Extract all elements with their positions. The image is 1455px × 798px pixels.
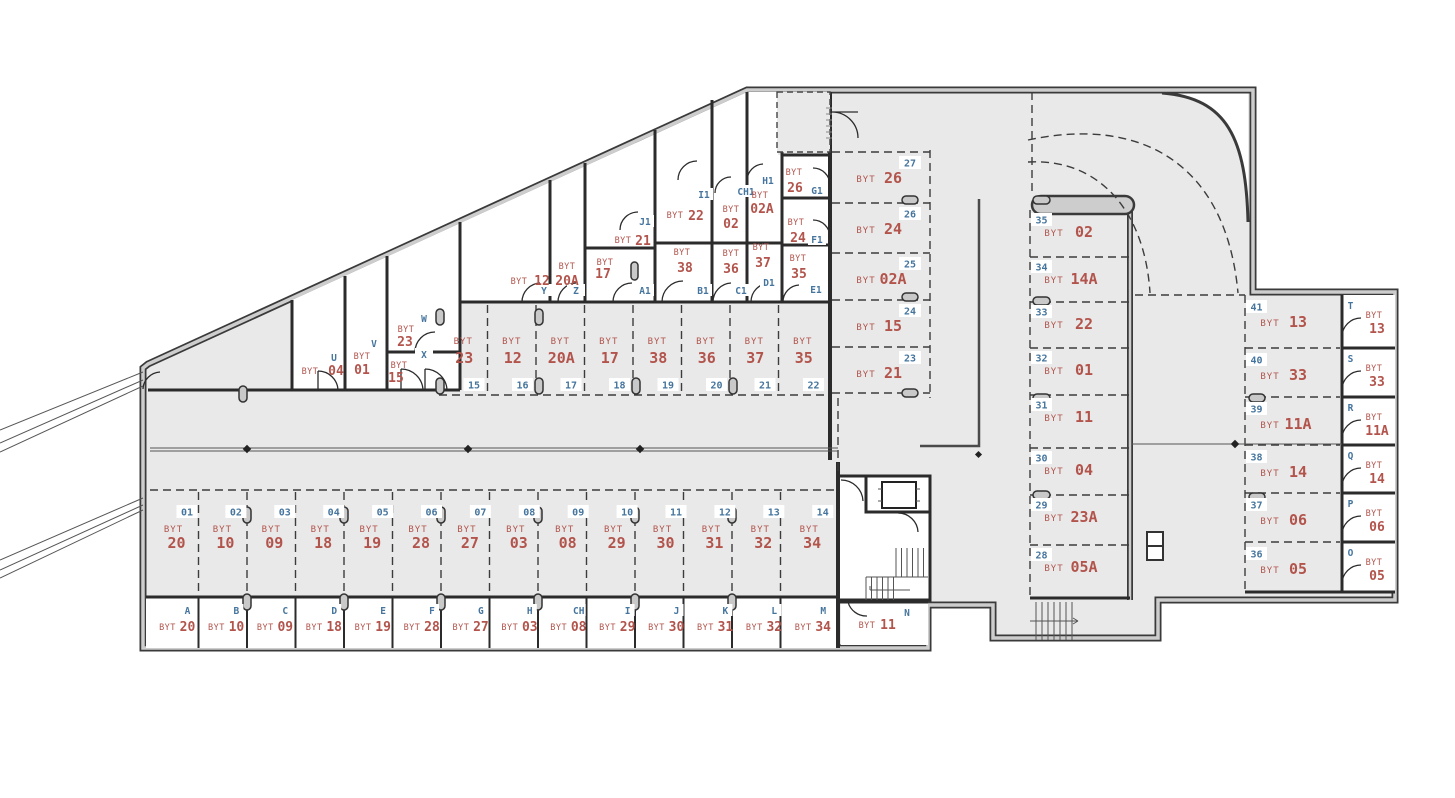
- byt-word: BYT: [1366, 311, 1383, 321]
- stall-number: 08: [523, 508, 535, 519]
- cellar-letter: H1: [762, 176, 774, 187]
- stall-number: 22: [807, 381, 819, 392]
- unit-number: 15: [884, 317, 902, 335]
- unit-number: 38: [677, 261, 693, 276]
- unit-number: 35: [795, 349, 813, 367]
- stall-number: 04: [328, 508, 340, 519]
- stall-number: 23: [904, 354, 916, 365]
- byt-word: BYT: [1366, 558, 1383, 568]
- byt-word: BYT: [723, 205, 740, 215]
- byt-word: BYT: [1260, 469, 1279, 479]
- byt-word: BYT: [859, 621, 876, 631]
- unit-number: 27: [461, 534, 479, 552]
- cellar-letter: E1: [810, 285, 822, 296]
- unit-number: 23A: [1070, 508, 1097, 526]
- cellar-letter: F: [429, 606, 435, 617]
- stall-number: 12: [719, 508, 731, 519]
- unit-number: 19: [363, 534, 381, 552]
- unit-number: 23: [455, 349, 473, 367]
- byt-word: BYT: [753, 243, 770, 253]
- stall-number: 33: [1035, 308, 1047, 319]
- unit-number: 20A: [555, 274, 579, 289]
- byt-word: BYT: [856, 226, 875, 236]
- byt-word: BYT: [1260, 421, 1279, 431]
- unit-number: 30: [656, 534, 674, 552]
- byt-word: BYT: [502, 337, 521, 347]
- unit-number: 15: [388, 371, 404, 386]
- byt-word: BYT: [795, 623, 812, 633]
- byt-word: BYT: [745, 337, 764, 347]
- stall-number: 03: [279, 508, 291, 519]
- stall-number: 40: [1250, 356, 1262, 367]
- unit-number: 29: [620, 620, 636, 635]
- stall-number: 19: [662, 381, 674, 392]
- unit-number: 24: [884, 220, 902, 238]
- unit-number: 30: [669, 620, 685, 635]
- unit-number: 34: [815, 620, 831, 635]
- byt-word: BYT: [1044, 367, 1063, 377]
- cellar-letter: B: [234, 606, 240, 617]
- unit-number: 34: [803, 534, 821, 552]
- cellar-letter: S: [1348, 354, 1354, 365]
- unit-number: 31: [718, 620, 734, 635]
- stall-number: 01: [181, 508, 193, 519]
- cellar-letter: M: [820, 606, 826, 617]
- cellar-letter: X: [421, 350, 427, 361]
- stall-number: 10: [621, 508, 633, 519]
- cellar-letter: J1: [639, 217, 651, 228]
- unit-number: 13: [1289, 313, 1307, 331]
- unit-number: 26: [787, 181, 803, 196]
- byt-word: BYT: [1044, 229, 1063, 239]
- stall-number: 05: [377, 508, 389, 519]
- byt-word: BYT: [1260, 372, 1279, 382]
- unit-number: 33: [1289, 366, 1307, 384]
- cellar-letter: CH: [573, 606, 585, 617]
- byt-word: BYT: [793, 337, 812, 347]
- unit-number: 10: [229, 620, 245, 635]
- unit-number: 06: [1289, 511, 1307, 529]
- unit-number: 05A: [1070, 558, 1097, 576]
- cellar-letter: B1: [697, 286, 709, 297]
- stall-number: 13: [768, 508, 780, 519]
- stall-number: 29: [1035, 501, 1047, 512]
- unit-number: 37: [755, 256, 771, 271]
- stall-number: 18: [613, 381, 625, 392]
- stall-number: 32: [1035, 354, 1047, 365]
- stall-number: 28: [1035, 551, 1047, 562]
- byt-word: BYT: [856, 175, 875, 185]
- stall-number: 26: [904, 210, 916, 221]
- unit-number: 02A: [879, 270, 906, 288]
- byt-word: BYT: [551, 337, 570, 347]
- unit-number: 12: [504, 349, 522, 367]
- cellar-letter: N: [904, 608, 910, 619]
- cellar-letter: L: [771, 606, 777, 617]
- byt-word: BYT: [550, 623, 567, 633]
- unit-number: 08: [559, 534, 577, 552]
- byt-word: BYT: [398, 325, 415, 335]
- byt-word: BYT: [1260, 566, 1279, 576]
- unit-number: 03: [510, 534, 528, 552]
- cellar-letter: C: [282, 606, 288, 617]
- cellar-letter: Q: [1348, 451, 1354, 462]
- byt-word: BYT: [697, 623, 714, 633]
- byt-word: BYT: [454, 337, 473, 347]
- stall-number: 15: [468, 381, 480, 392]
- cellar-letter: K: [723, 606, 729, 617]
- stall-number: 38: [1250, 453, 1262, 464]
- unit-number: 22: [688, 209, 704, 224]
- unit-number: 11: [880, 618, 896, 633]
- unit-number: 02: [1075, 223, 1093, 241]
- cellar-letter: R: [1348, 403, 1354, 414]
- cellar-letter: I1: [698, 190, 710, 201]
- unit-number: 06: [1369, 520, 1385, 535]
- unit-number: 37: [746, 349, 764, 367]
- unit-number: 14: [1289, 463, 1307, 481]
- stall-number: 25: [904, 260, 916, 271]
- byt-word: BYT: [208, 623, 225, 633]
- stall-number: 35: [1035, 216, 1047, 227]
- byt-word: BYT: [1366, 413, 1383, 423]
- unit-number: 09: [277, 620, 293, 635]
- cellar-letter: D: [331, 606, 337, 617]
- byt-word: BYT: [159, 623, 176, 633]
- unit-number: 20: [180, 620, 196, 635]
- stall-number: 27: [904, 159, 916, 170]
- byt-word: BYT: [1044, 564, 1063, 574]
- stall-number: 17: [565, 381, 577, 392]
- unit-number: 20A: [548, 349, 575, 367]
- unit-number: 22: [1075, 315, 1093, 333]
- unit-number: 32: [766, 620, 782, 635]
- stall-number: 39: [1250, 405, 1262, 416]
- byt-word: BYT: [1260, 319, 1279, 329]
- byt-word: BYT: [404, 623, 421, 633]
- unit-number: 01: [354, 363, 370, 378]
- byt-word: BYT: [1044, 514, 1063, 524]
- stall-number: 09: [572, 508, 584, 519]
- unit-number: 20: [167, 534, 185, 552]
- byt-word: BYT: [696, 337, 715, 347]
- cellar-letter: D1: [763, 278, 775, 289]
- byt-word: BYT: [723, 249, 740, 259]
- byt-word: BYT: [667, 211, 684, 221]
- byt-word: BYT: [257, 623, 274, 633]
- byt-word: BYT: [1366, 364, 1383, 374]
- unit-number: 13: [1369, 322, 1385, 337]
- unit-number: 04: [1075, 461, 1093, 479]
- stall-number: 30: [1035, 454, 1047, 465]
- unit-number: 29: [608, 534, 626, 552]
- byt-word: BYT: [752, 191, 769, 201]
- unit-number: 21: [635, 234, 651, 249]
- byt-word: BYT: [306, 623, 323, 633]
- cellar-letter: C1: [735, 286, 747, 297]
- byt-word: BYT: [559, 262, 576, 272]
- stall-number: 36: [1250, 550, 1262, 561]
- stall-number: 06: [425, 508, 437, 519]
- byt-word: BYT: [599, 623, 616, 633]
- unit-number: 14A: [1070, 270, 1097, 288]
- unit-number: 38: [649, 349, 667, 367]
- ramp-room: [777, 92, 830, 152]
- unit-number: 04: [328, 364, 344, 379]
- byt-word: BYT: [599, 337, 618, 347]
- stall-number: 02: [230, 508, 242, 519]
- byt-word: BYT: [1366, 509, 1383, 519]
- cellar-letter: O: [1348, 548, 1354, 559]
- unit-number: 10: [216, 534, 234, 552]
- unit-number: 36: [723, 262, 739, 277]
- byt-word: BYT: [391, 361, 408, 371]
- byt-word: BYT: [856, 370, 875, 380]
- stall-number: 24: [904, 307, 916, 318]
- unit-number: 18: [326, 620, 342, 635]
- stall-number: 37: [1250, 501, 1262, 512]
- unit-number: 32: [754, 534, 772, 552]
- stall-number: 07: [474, 508, 486, 519]
- garage-floor-plan-drawing: 01BYT2002BYT1003BYT0904BYT1805BYT1906BYT…: [0, 0, 1455, 798]
- stall-number: 31: [1035, 401, 1047, 412]
- unit-number: 31: [705, 534, 723, 552]
- unit-number: 11A: [1284, 415, 1311, 433]
- unit-number: 08: [571, 620, 587, 635]
- byt-word: BYT: [1044, 321, 1063, 331]
- stall-number: 41: [1250, 303, 1262, 314]
- unit-number: 02: [723, 217, 739, 232]
- byt-word: BYT: [856, 323, 875, 333]
- byt-word: BYT: [511, 277, 528, 287]
- unit-number: 02A: [750, 202, 774, 217]
- stall-number: 14: [817, 508, 829, 519]
- unit-number: 23: [397, 335, 413, 350]
- byt-word: BYT: [788, 218, 805, 228]
- stall-number: 34: [1035, 263, 1047, 274]
- byt-word: BYT: [1260, 517, 1279, 527]
- stall-number: 11: [670, 508, 682, 519]
- unit-number: 11: [1075, 408, 1093, 426]
- cellar-letter: A1: [639, 286, 651, 297]
- unit-number: 17: [595, 267, 611, 282]
- unit-number: 09: [265, 534, 283, 552]
- byt-word: BYT: [790, 254, 807, 264]
- byt-word: BYT: [746, 623, 763, 633]
- unit-number: 03: [522, 620, 538, 635]
- byt-word: BYT: [501, 623, 518, 633]
- unit-number: 18: [314, 534, 332, 552]
- unit-number: 14: [1369, 472, 1385, 487]
- exterior-road-lines: [0, 372, 143, 578]
- cellar-letter: F1: [811, 235, 823, 246]
- byt-word: BYT: [355, 623, 372, 633]
- cellar-letter: U: [331, 353, 337, 364]
- unit-number: 11A: [1365, 424, 1389, 439]
- floor-plan-page: 01BYT2002BYT1003BYT0904BYT1805BYT1906BYT…: [0, 0, 1455, 798]
- byt-word: BYT: [648, 623, 665, 633]
- unit-number: 33: [1369, 375, 1385, 390]
- cellar-letter: G: [478, 606, 484, 617]
- unit-number: 36: [698, 349, 716, 367]
- unit-number: 05: [1289, 560, 1307, 578]
- unit-number: 05: [1369, 569, 1385, 584]
- cellar-letter: T: [1348, 301, 1354, 312]
- byt-word: BYT: [615, 236, 632, 246]
- unit-number: 28: [412, 534, 430, 552]
- unit-number: 26: [884, 169, 902, 187]
- unit-number: 24: [790, 231, 806, 246]
- cellar-letter: E: [380, 606, 386, 617]
- unit-number: 35: [791, 267, 807, 282]
- cellar-letter: G1: [811, 186, 823, 197]
- unit-number: 01: [1075, 361, 1093, 379]
- stall-number: 21: [759, 381, 771, 392]
- unit-number: 27: [473, 620, 489, 635]
- byt-word: BYT: [452, 623, 469, 633]
- cellar-letter: A: [185, 606, 191, 617]
- byt-word: BYT: [648, 337, 667, 347]
- unit-number: 28: [424, 620, 440, 635]
- byt-word: BYT: [1044, 414, 1063, 424]
- stall-number: 16: [516, 381, 528, 392]
- cellar-letter: I: [625, 606, 631, 617]
- byt-word: BYT: [786, 168, 803, 178]
- byt-word: BYT: [856, 276, 875, 286]
- cellar-letter: V: [371, 339, 377, 350]
- cellar-letter: J: [674, 606, 680, 617]
- unit-number: 19: [375, 620, 391, 635]
- byt-word: BYT: [1044, 467, 1063, 477]
- unit-number: 12: [534, 274, 550, 289]
- cellar-letter: W: [421, 314, 427, 325]
- unit-number: 17: [601, 349, 619, 367]
- byt-word: BYT: [1366, 461, 1383, 471]
- stall-number: 20: [710, 381, 722, 392]
- cellar-letter: P: [1348, 499, 1354, 510]
- unit-number: 21: [884, 364, 902, 382]
- byt-word: BYT: [674, 248, 691, 258]
- byt-word: BYT: [302, 367, 319, 377]
- cellar-letter: H: [527, 606, 533, 617]
- byt-word: BYT: [354, 352, 371, 362]
- byt-word: BYT: [1044, 276, 1063, 286]
